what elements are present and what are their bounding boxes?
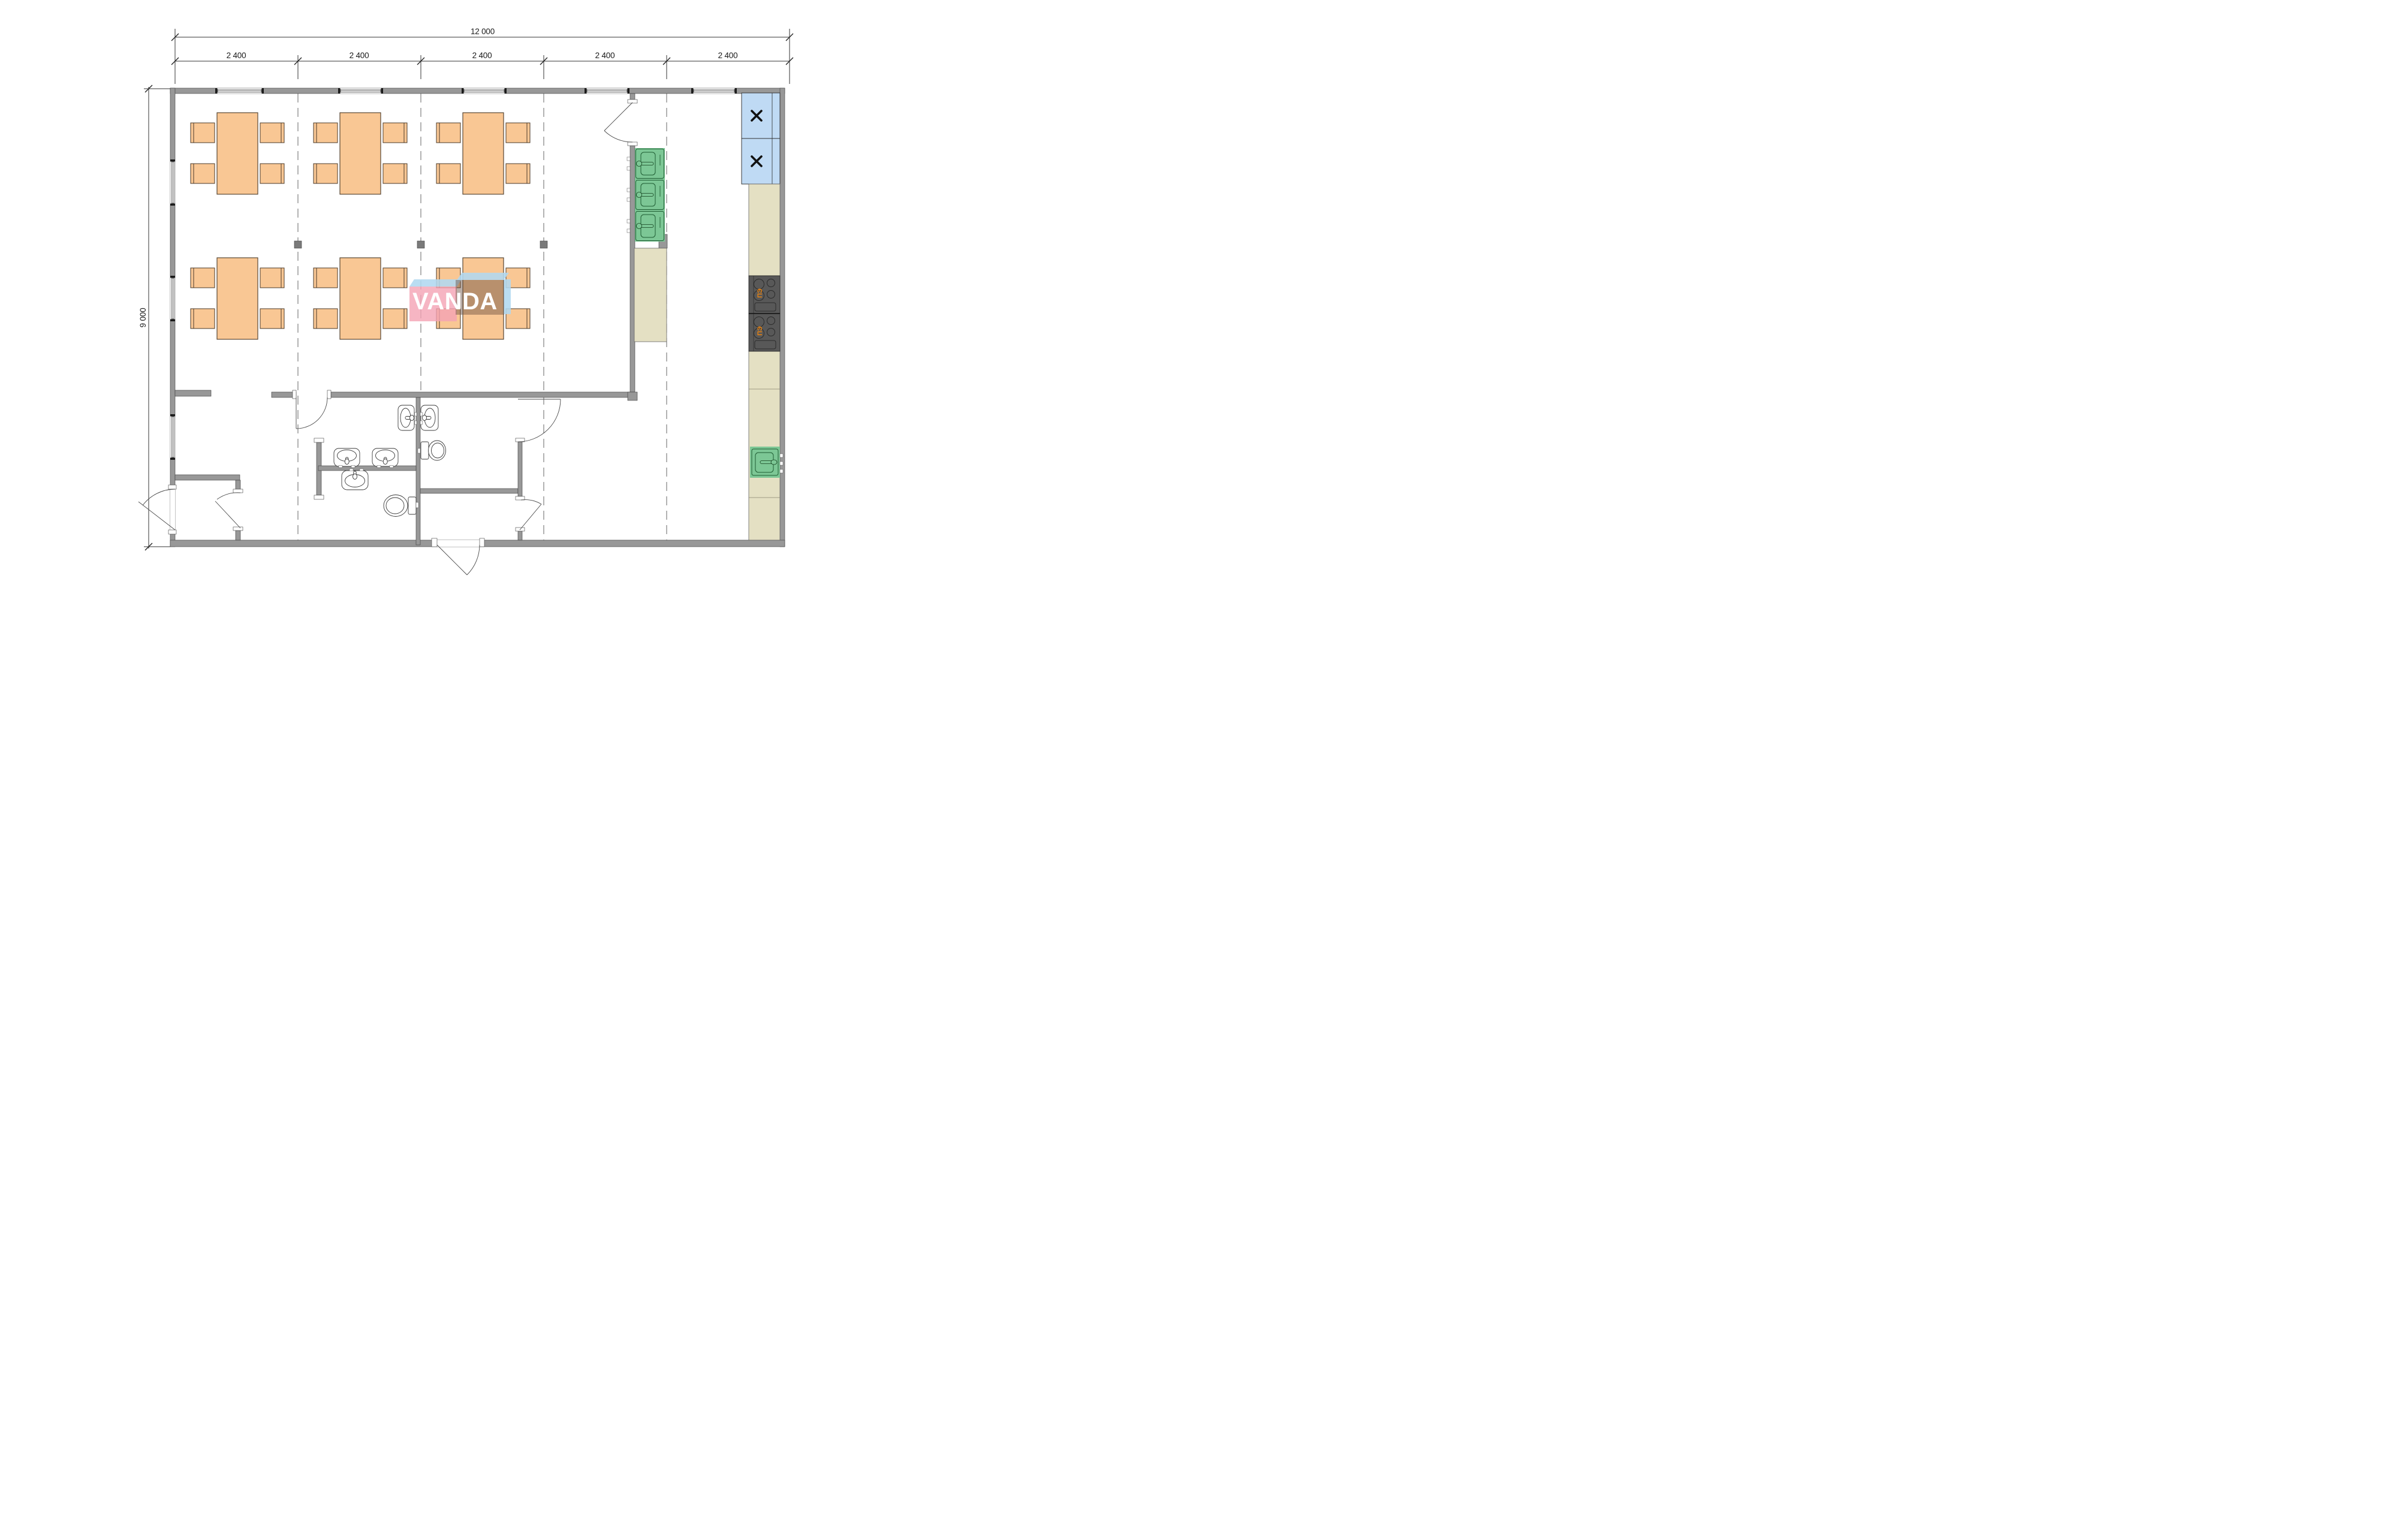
chair bbox=[260, 123, 284, 143]
washbasin bbox=[372, 448, 398, 466]
chair bbox=[314, 268, 338, 288]
dimension-label-module-3: 2 400 bbox=[472, 51, 492, 60]
chair bbox=[191, 268, 215, 288]
base-cabinet bbox=[634, 248, 667, 342]
stove-label: ПЭ bbox=[757, 288, 764, 298]
chair bbox=[383, 123, 407, 143]
door-leaf bbox=[138, 502, 175, 530]
wall-kitchen-foot bbox=[628, 392, 637, 400]
kitchen-sink-single bbox=[750, 447, 783, 478]
window bbox=[462, 88, 507, 94]
chair bbox=[191, 309, 215, 329]
dimension-label-module-4: 2 400 bbox=[595, 51, 615, 60]
door-swing-arc bbox=[467, 545, 480, 575]
washbasin bbox=[334, 448, 360, 466]
toilet bbox=[384, 495, 416, 517]
dining-furniture bbox=[191, 113, 530, 339]
washbasin bbox=[421, 405, 438, 430]
exterior-wall-right bbox=[780, 88, 785, 547]
door-leaf bbox=[437, 545, 467, 575]
counter bbox=[749, 184, 780, 276]
dining-table bbox=[340, 113, 381, 194]
cabinet-unit bbox=[742, 93, 780, 184]
chair bbox=[506, 123, 530, 143]
dining-table bbox=[340, 258, 381, 339]
chair bbox=[436, 268, 460, 288]
wall-kitchen-stub bbox=[630, 94, 635, 100]
counter bbox=[749, 351, 780, 540]
chair bbox=[506, 164, 530, 183]
wall-washroom-center bbox=[416, 397, 420, 545]
dining-table bbox=[217, 113, 258, 194]
counter-run bbox=[749, 184, 780, 540]
chair bbox=[314, 164, 338, 183]
sanitary-fixtures bbox=[334, 405, 446, 517]
column bbox=[417, 241, 424, 248]
chair bbox=[436, 164, 460, 183]
wall-entry-room-top bbox=[175, 475, 240, 480]
dining-table bbox=[217, 258, 258, 339]
wall-washroom-left bbox=[318, 466, 416, 471]
chair bbox=[436, 123, 460, 143]
floor-plan-page: 12 000 2 400 2 400 2 400 2 400 2 400 9 0… bbox=[0, 0, 926, 595]
dimension-label-total-height: 9 000 bbox=[138, 308, 147, 328]
electric-stove bbox=[749, 314, 780, 351]
door-swing-arc bbox=[296, 397, 327, 429]
door-opening bbox=[170, 489, 175, 530]
window bbox=[691, 88, 737, 94]
dimension-label-module-2: 2 400 bbox=[350, 51, 369, 60]
chair bbox=[191, 123, 215, 143]
window bbox=[585, 88, 629, 94]
dining-table bbox=[463, 258, 504, 339]
door-swing-arc bbox=[604, 131, 632, 142]
chair bbox=[314, 123, 338, 143]
chair bbox=[314, 309, 338, 329]
chair bbox=[506, 268, 530, 288]
wall-washroom-right bbox=[420, 489, 518, 493]
window bbox=[215, 88, 264, 94]
wall-entry-room-right bbox=[236, 480, 240, 490]
wall-wc-right bbox=[518, 442, 522, 496]
dining-table bbox=[463, 113, 504, 194]
chair bbox=[506, 309, 530, 329]
door-swing-arc bbox=[518, 399, 561, 442]
chair bbox=[260, 268, 284, 288]
floor-plan-drawing: 12 000 2 400 2 400 2 400 2 400 2 400 9 0… bbox=[0, 0, 926, 595]
door-swing-arc bbox=[217, 493, 240, 499]
electric-stove bbox=[749, 276, 780, 314]
chair bbox=[436, 309, 460, 329]
dimension-label-total-width: 12 000 bbox=[471, 27, 495, 36]
chair bbox=[383, 268, 407, 288]
washbasin bbox=[398, 405, 414, 430]
dimension-label-module-1: 2 400 bbox=[227, 51, 246, 60]
dimension-label-module-5: 2 400 bbox=[718, 51, 738, 60]
window bbox=[170, 276, 175, 321]
wall-wc-right-stub bbox=[518, 531, 522, 540]
wall-entry-room-right bbox=[236, 531, 240, 540]
electric-stoves: ПЭ ПЭ bbox=[749, 276, 780, 351]
chair bbox=[383, 309, 407, 329]
stove-label: ПЭ bbox=[757, 326, 764, 336]
door-leaf bbox=[520, 504, 541, 530]
door-swing-arc bbox=[521, 500, 541, 504]
toilet bbox=[421, 441, 446, 460]
column bbox=[540, 241, 547, 248]
plumbing-ticks bbox=[627, 157, 630, 233]
chair bbox=[383, 164, 407, 183]
wall-vestibule-stub bbox=[175, 390, 211, 396]
wall-washroom-top bbox=[331, 392, 631, 397]
chair bbox=[260, 164, 284, 183]
washbasin bbox=[342, 471, 368, 490]
door-leaf bbox=[215, 501, 240, 528]
window bbox=[170, 414, 175, 460]
chair bbox=[191, 164, 215, 183]
door-opening bbox=[437, 540, 480, 547]
window bbox=[338, 88, 383, 94]
window bbox=[170, 159, 175, 206]
kitchen-equipment: ПЭ ПЭ bbox=[627, 93, 783, 540]
chair bbox=[260, 309, 284, 329]
column bbox=[294, 241, 302, 248]
door-leaf bbox=[604, 103, 632, 131]
